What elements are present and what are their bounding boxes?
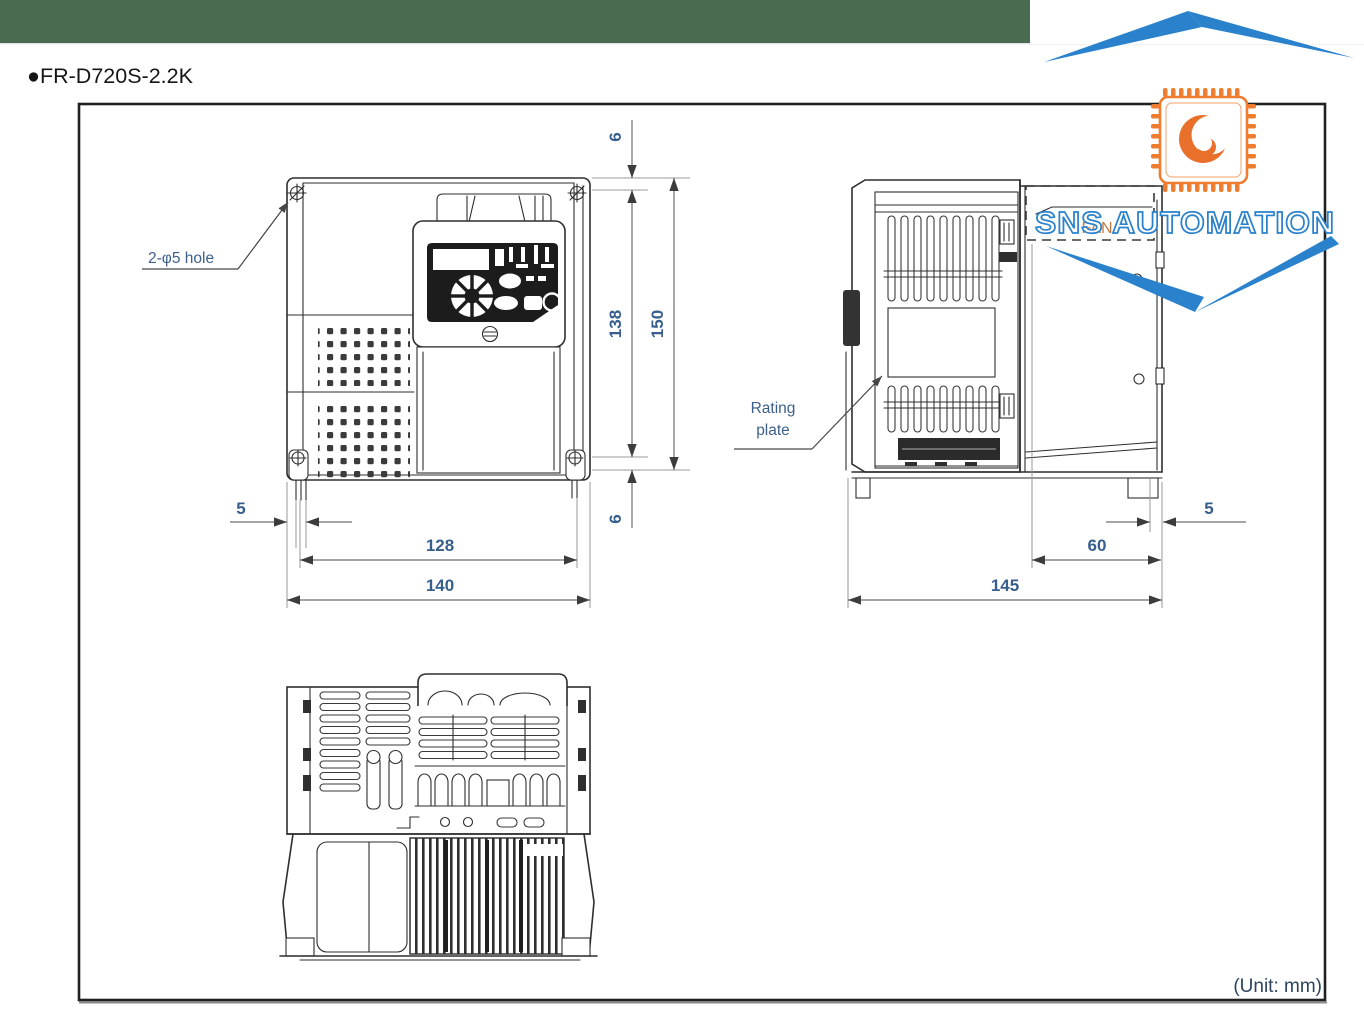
mode-button	[499, 274, 521, 289]
led-display	[433, 249, 489, 270]
lower-cover	[417, 347, 560, 473]
side-vent-slots-top	[884, 216, 1002, 301]
dim-bottom-offset: 6	[606, 514, 625, 523]
vent-dot-grid-lower	[318, 402, 410, 478]
dim-overall-depth: 145	[991, 576, 1019, 595]
setting-dial	[451, 275, 493, 317]
dim-edge-offset: 5	[1204, 499, 1213, 518]
rating-plate-label-line2: plate	[756, 422, 790, 439]
dim-overall-width: 140	[426, 576, 454, 595]
page-title: ●FR-D720S-2.2K	[27, 64, 194, 88]
heatsink	[280, 834, 597, 960]
vent-dot-grid-upper	[318, 324, 410, 386]
brand-wordmark: SNS AUTOMATION	[1035, 205, 1335, 240]
dim-hole-pitch-vertical: 138	[606, 310, 625, 338]
mounting-tab-bottom-right	[566, 450, 585, 480]
unit-note: (Unit: mm)	[1233, 976, 1322, 997]
frame-shadow	[79, 1002, 1327, 1004]
dim-side-offset: 5	[236, 499, 245, 518]
bottom-view	[280, 674, 597, 960]
rating-plate-label-line1: Rating	[751, 400, 796, 417]
side-connector	[843, 290, 860, 346]
dim-fan-depth: 60	[1088, 536, 1107, 555]
run-button	[524, 296, 542, 310]
dim-top-offset: 6	[606, 132, 625, 141]
hole-label: 2-φ5 hole	[148, 250, 214, 267]
rating-plate	[888, 308, 995, 377]
chip-swirl-icon	[1151, 88, 1256, 192]
dim-overall-height: 150	[648, 310, 667, 338]
set-button	[494, 296, 518, 310]
bottom-vent-slats-left	[320, 692, 360, 791]
dim-hole-pitch-horizontal: 128	[426, 536, 454, 555]
front-view	[287, 178, 590, 500]
side-vent-slots-bottom	[884, 386, 1002, 432]
keypad-panel	[427, 243, 561, 322]
mounting-tab-bottom-left	[289, 450, 308, 480]
page: ●FR-D720S-2.2K	[0, 0, 1364, 1016]
